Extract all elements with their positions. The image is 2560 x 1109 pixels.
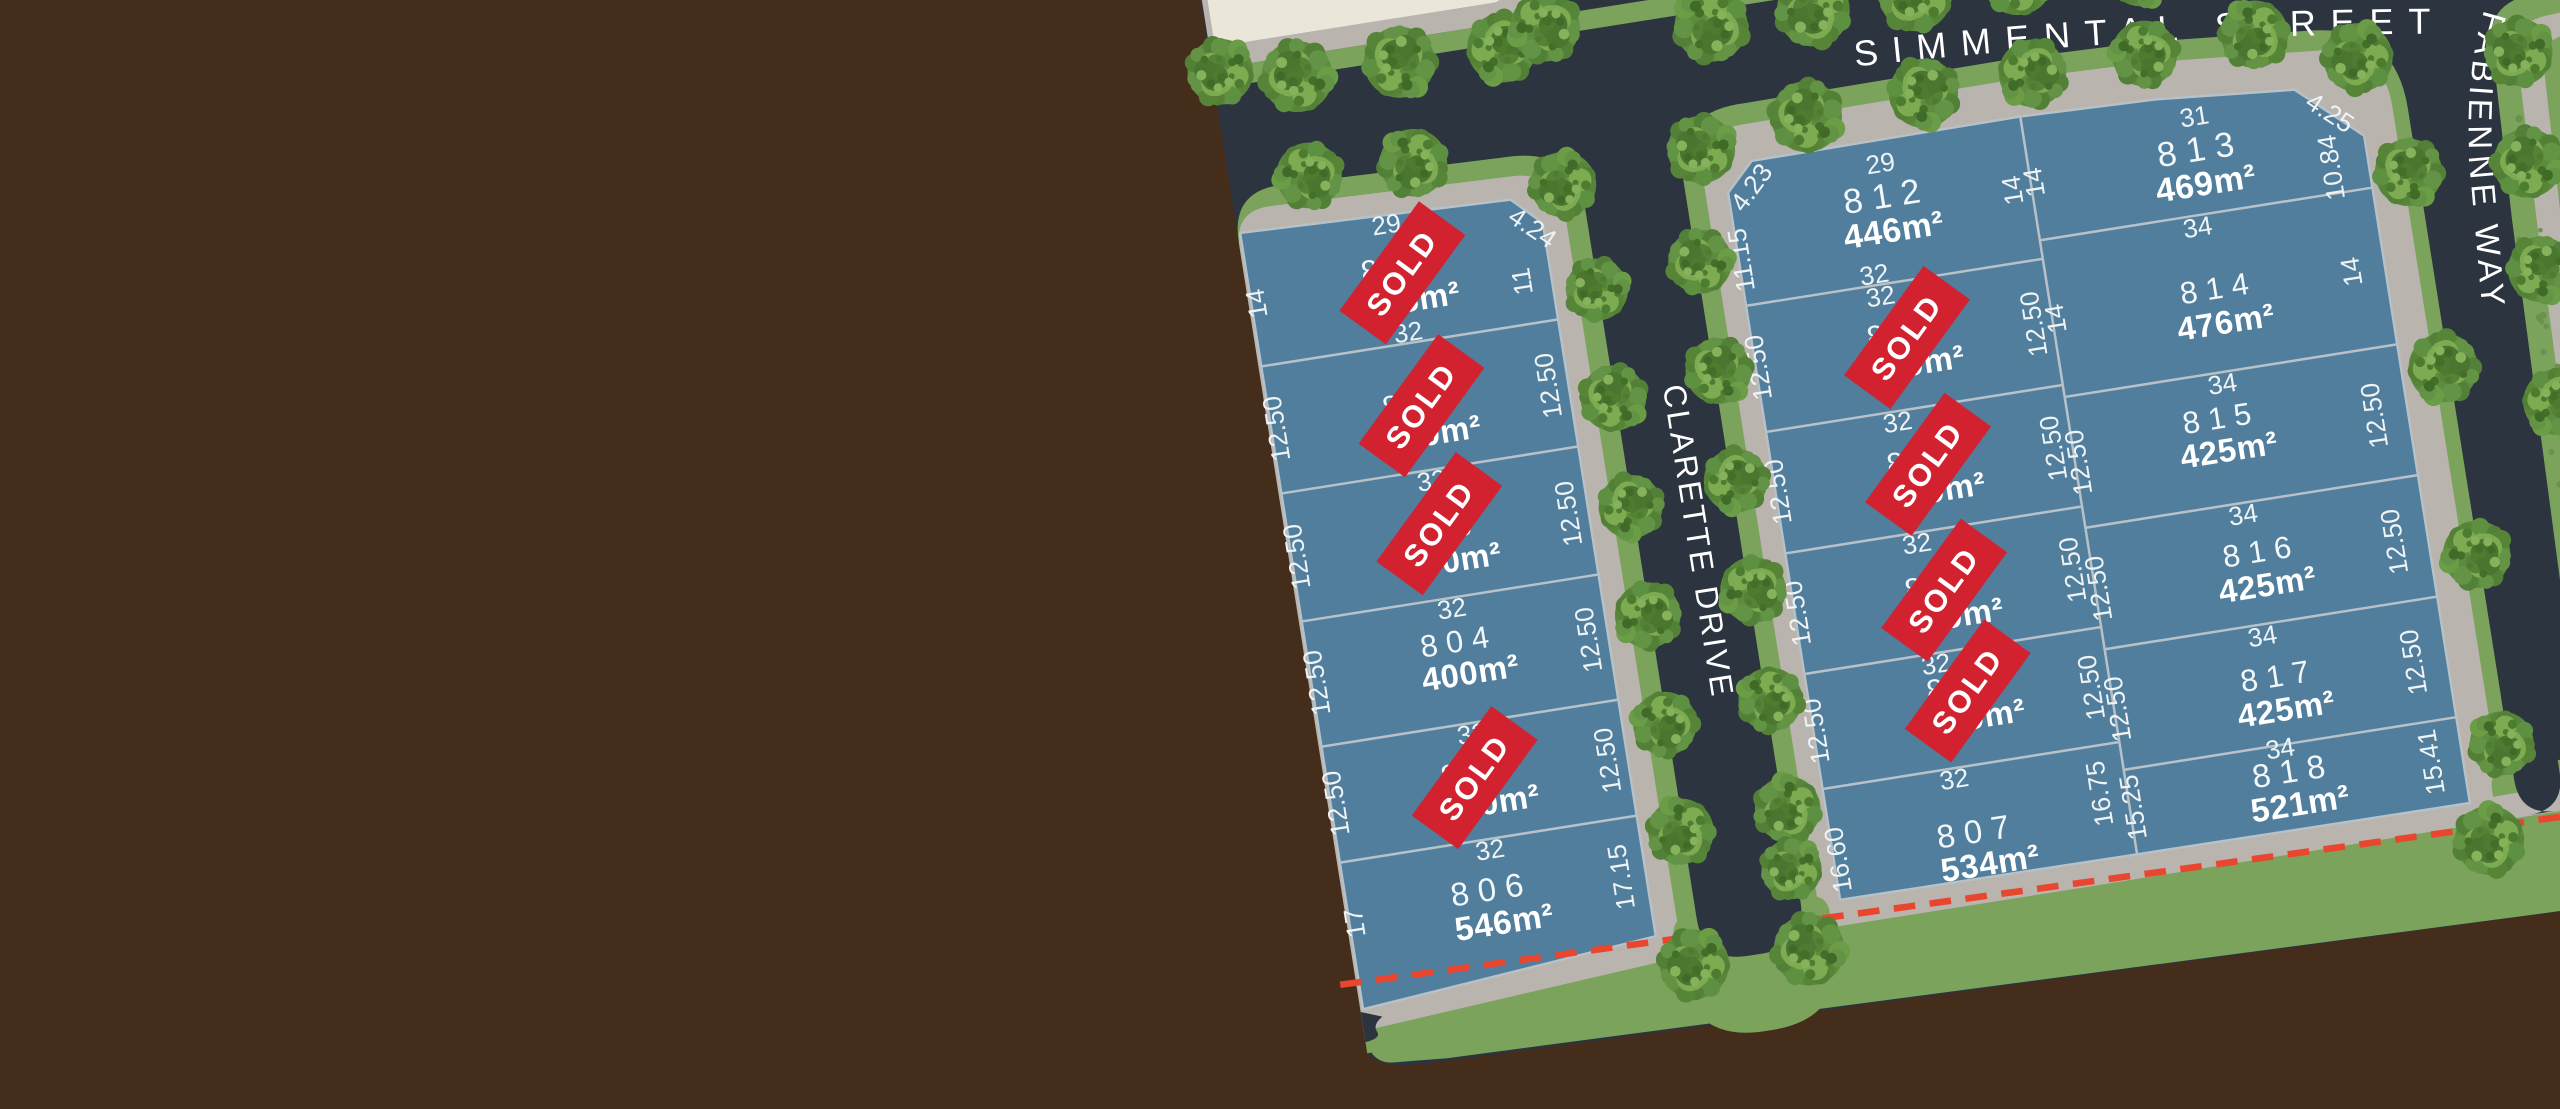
svg-text:32: 32 (1435, 592, 1469, 626)
svg-text:14: 14 (2038, 302, 2072, 336)
svg-text:31: 31 (2177, 99, 2211, 133)
svg-text:11: 11 (1505, 266, 1539, 298)
svg-text:34: 34 (2181, 210, 2215, 244)
svg-text:29: 29 (1864, 146, 1898, 180)
svg-text:17: 17 (1338, 906, 1372, 940)
svg-text:34: 34 (2226, 498, 2260, 532)
svg-text:34: 34 (2206, 367, 2240, 401)
svg-text:32: 32 (1881, 405, 1915, 439)
svg-text:14: 14 (1239, 287, 1273, 321)
svg-text:32: 32 (1937, 762, 1971, 796)
svg-text:32: 32 (1864, 279, 1898, 313)
svg-text:34: 34 (2246, 619, 2280, 653)
svg-text:14: 14 (2017, 166, 2051, 200)
svg-text:14: 14 (2334, 255, 2368, 289)
svg-text:32: 32 (1473, 833, 1507, 867)
svg-text:32: 32 (1900, 526, 1934, 560)
svg-text:34: 34 (2263, 731, 2297, 765)
